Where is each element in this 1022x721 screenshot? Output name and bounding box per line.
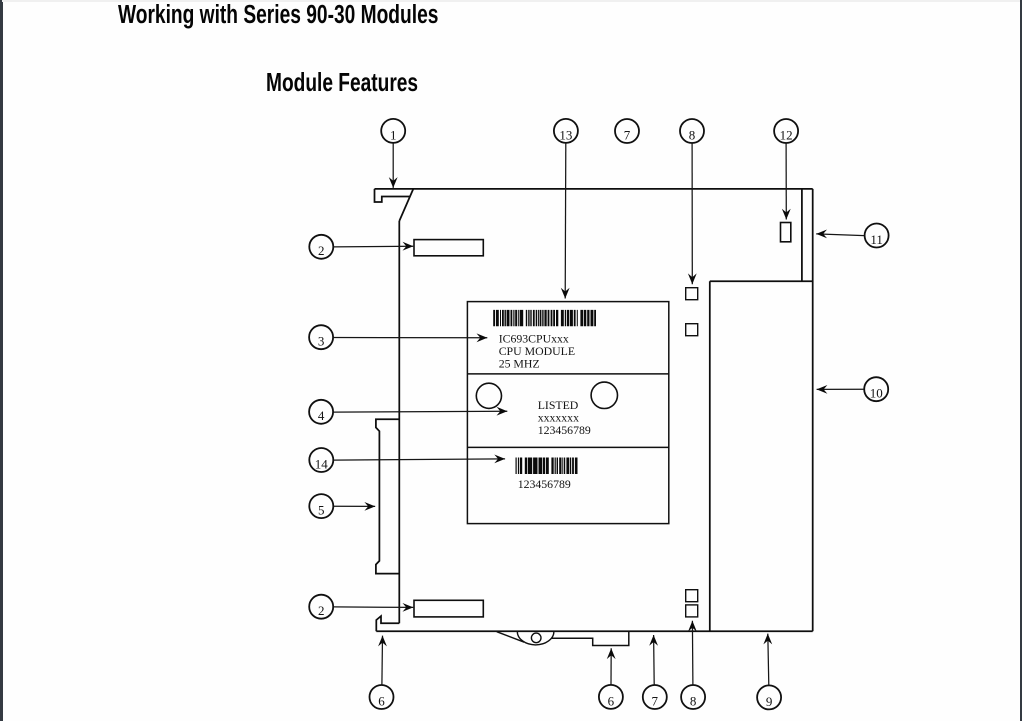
svg-text:3: 3: [318, 334, 325, 349]
svg-text:9: 9: [766, 694, 773, 709]
svg-text:2: 2: [318, 603, 325, 618]
svg-text:8: 8: [689, 127, 696, 142]
svg-text:5: 5: [318, 503, 325, 518]
svg-text:123456789: 123456789: [538, 423, 591, 437]
svg-text:14: 14: [315, 456, 329, 471]
svg-text:7: 7: [652, 693, 659, 708]
svg-text:11: 11: [870, 232, 883, 247]
svg-text:13: 13: [559, 127, 572, 142]
svg-text:2: 2: [318, 243, 325, 258]
svg-text:10: 10: [870, 386, 883, 401]
svg-text:6: 6: [608, 693, 615, 708]
svg-text:8: 8: [690, 693, 697, 708]
svg-text:6: 6: [378, 693, 385, 708]
svg-text:12: 12: [780, 127, 793, 142]
svg-text:4: 4: [318, 408, 325, 423]
svg-text:123456789: 123456789: [518, 477, 571, 491]
svg-text:7: 7: [624, 127, 631, 142]
svg-text:1: 1: [390, 127, 397, 142]
svg-text:25 MHZ: 25 MHZ: [499, 357, 540, 371]
